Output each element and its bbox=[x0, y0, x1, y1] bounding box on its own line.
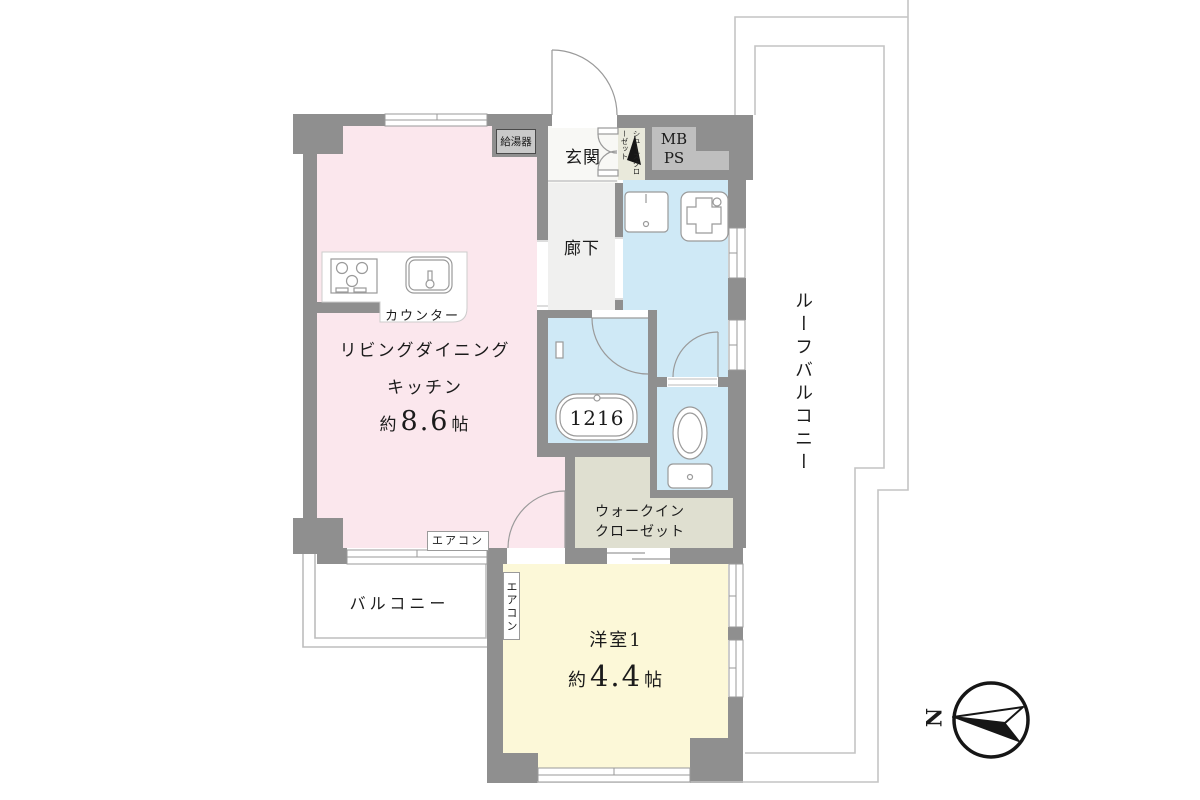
tub-size-label: 1216 bbox=[557, 406, 637, 430]
entrance-door bbox=[552, 50, 617, 115]
compass-north-label: N bbox=[922, 700, 947, 736]
window-ldk-top bbox=[385, 114, 487, 126]
wall bbox=[537, 443, 657, 457]
meter-box-label: MB PS bbox=[652, 130, 696, 168]
roof-balcony-label: ルーフバルコニー bbox=[789, 278, 815, 488]
walk-in-closet-label: ウォークイン クローゼット bbox=[588, 502, 692, 543]
wall bbox=[728, 278, 746, 320]
wall bbox=[648, 310, 657, 443]
wall bbox=[657, 377, 667, 387]
wall bbox=[670, 548, 743, 564]
ldk-label: リビングダイニング キッチン 約8.6帖 bbox=[315, 336, 535, 437]
water-heater-inner: 給湯器 bbox=[496, 129, 536, 154]
western-room-area: 約4.4帖 bbox=[505, 659, 727, 693]
room-washroom bbox=[623, 180, 728, 311]
window-ldk-bottom bbox=[347, 550, 487, 564]
wall bbox=[650, 490, 746, 498]
mb-text: MB bbox=[652, 130, 696, 149]
counter-label: カウンター bbox=[380, 305, 465, 324]
ldk-area-value: 8.6 bbox=[399, 406, 452, 437]
wall bbox=[728, 370, 746, 387]
balcony-label: バルコニー bbox=[313, 590, 486, 614]
wall bbox=[615, 300, 623, 318]
wall bbox=[728, 387, 746, 490]
wall bbox=[728, 180, 746, 228]
shoe-closet-label: シューズクローゼット bbox=[616, 130, 642, 180]
room-toilet bbox=[657, 387, 728, 490]
wall bbox=[617, 115, 645, 128]
western-area-unit: 帖 bbox=[644, 670, 664, 691]
wic-label-line1: ウォークイン bbox=[588, 502, 692, 522]
wall bbox=[718, 377, 728, 387]
wall bbox=[728, 697, 743, 783]
water-heater-box: 給湯器 bbox=[492, 126, 540, 157]
window-western-bottom bbox=[538, 768, 690, 782]
aircon-label-ldk: エアコン bbox=[427, 531, 489, 551]
window-western-right-lower bbox=[729, 640, 743, 697]
hallway-label: 廊下 bbox=[548, 234, 616, 259]
western-area-prefix: 約 bbox=[568, 670, 588, 691]
wall bbox=[487, 753, 538, 783]
western-room-name: 洋室1 bbox=[505, 626, 727, 652]
ldk-area: 約8.6帖 bbox=[315, 406, 535, 437]
window-washroom-right-lower bbox=[729, 320, 745, 370]
aircon-label-western: エアコン bbox=[503, 572, 520, 640]
wall bbox=[537, 310, 548, 456]
entrance-label: 玄関 bbox=[549, 143, 617, 168]
window-western-right-upper bbox=[729, 564, 743, 627]
wall bbox=[565, 548, 607, 564]
compass-icon bbox=[953, 683, 1028, 757]
wall bbox=[728, 627, 743, 640]
floor-plan: リビングダイニング キッチン 約8.6帖 洋室1 約4.4帖 玄関 廊下 バルコ… bbox=[0, 0, 1200, 800]
wall bbox=[487, 548, 503, 783]
wall bbox=[565, 455, 575, 548]
meter-box-pipe-space: MB PS bbox=[652, 127, 696, 170]
meter-box-extension bbox=[695, 151, 729, 170]
ldk-area-unit: 帖 bbox=[451, 415, 470, 435]
wic-label-line2: クローゼット bbox=[588, 522, 692, 542]
wall bbox=[537, 310, 592, 318]
wall bbox=[615, 183, 623, 237]
ldk-area-prefix: 約 bbox=[380, 415, 399, 435]
western-room-label: 洋室1 約4.4帖 bbox=[505, 626, 727, 693]
room-ldk-extension bbox=[537, 455, 565, 548]
water-heater-label: 給湯器 bbox=[497, 134, 535, 149]
ps-text: PS bbox=[652, 149, 696, 168]
wall bbox=[733, 490, 746, 548]
western-area-value: 4.4 bbox=[588, 659, 644, 693]
wall bbox=[317, 302, 380, 313]
window-washroom-right-upper bbox=[729, 228, 745, 278]
ldk-name-line1: リビングダイニング bbox=[315, 336, 535, 361]
wall bbox=[303, 114, 317, 554]
ldk-name-line2: キッチン bbox=[315, 373, 535, 398]
room-washroom-lower bbox=[657, 311, 728, 377]
wall bbox=[317, 548, 347, 564]
